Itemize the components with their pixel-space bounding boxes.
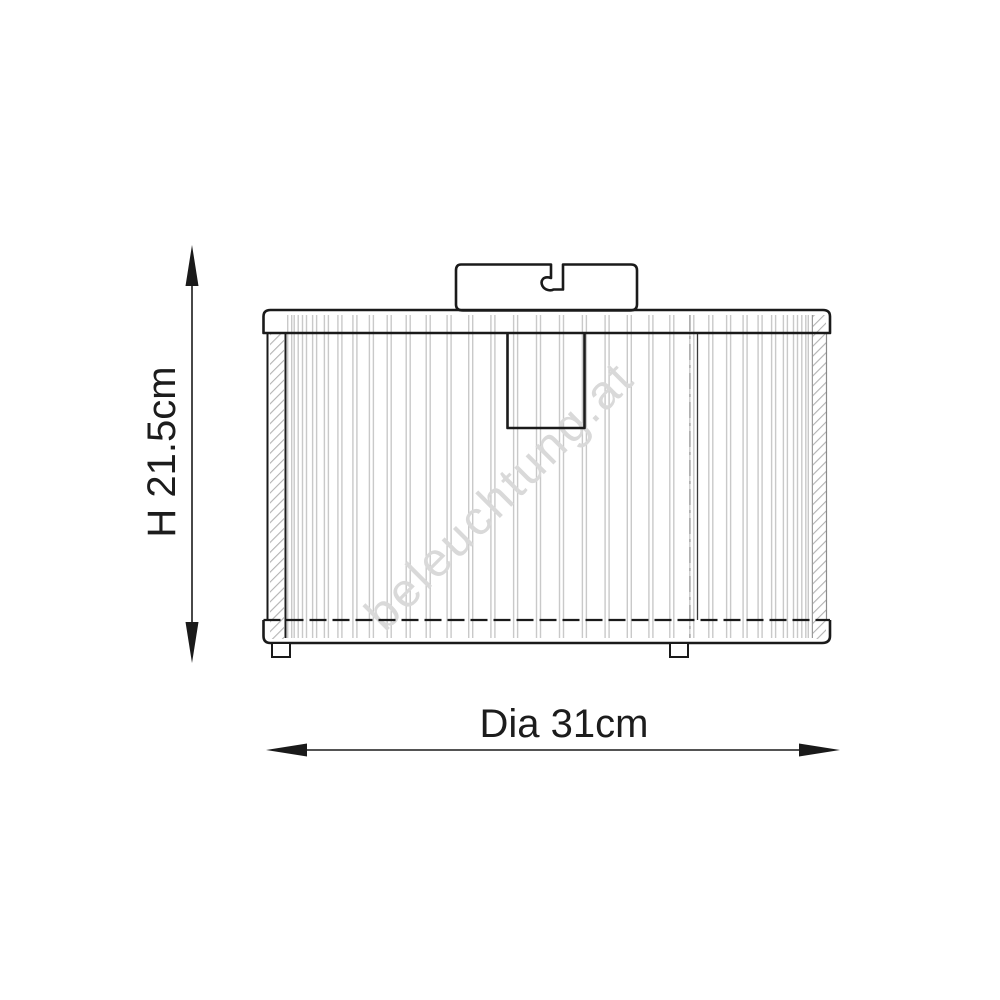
right-foot: [670, 643, 688, 657]
height-dimension-label: H 21.5cm: [142, 366, 182, 537]
mounting-bracket: [456, 265, 637, 311]
height-arrow-top: [186, 245, 199, 286]
watermark-text: beleuchtung.at: [355, 351, 645, 641]
diameter-arrow-right: [799, 744, 840, 757]
left-foot: [272, 643, 290, 657]
top-rim: [264, 310, 831, 333]
right-wall-hatch: [813, 315, 826, 639]
height-arrow-bottom: [186, 622, 199, 663]
diameter-dimension-label: Dia 31cm: [480, 704, 649, 744]
bottom-rim: [264, 620, 831, 643]
left-wall-hatch: [270, 334, 284, 639]
dimension-diagram-page: beleuchtung.at H 21.5cm Dia 31cm: [0, 0, 1000, 1000]
diameter-arrow-left: [266, 744, 307, 757]
